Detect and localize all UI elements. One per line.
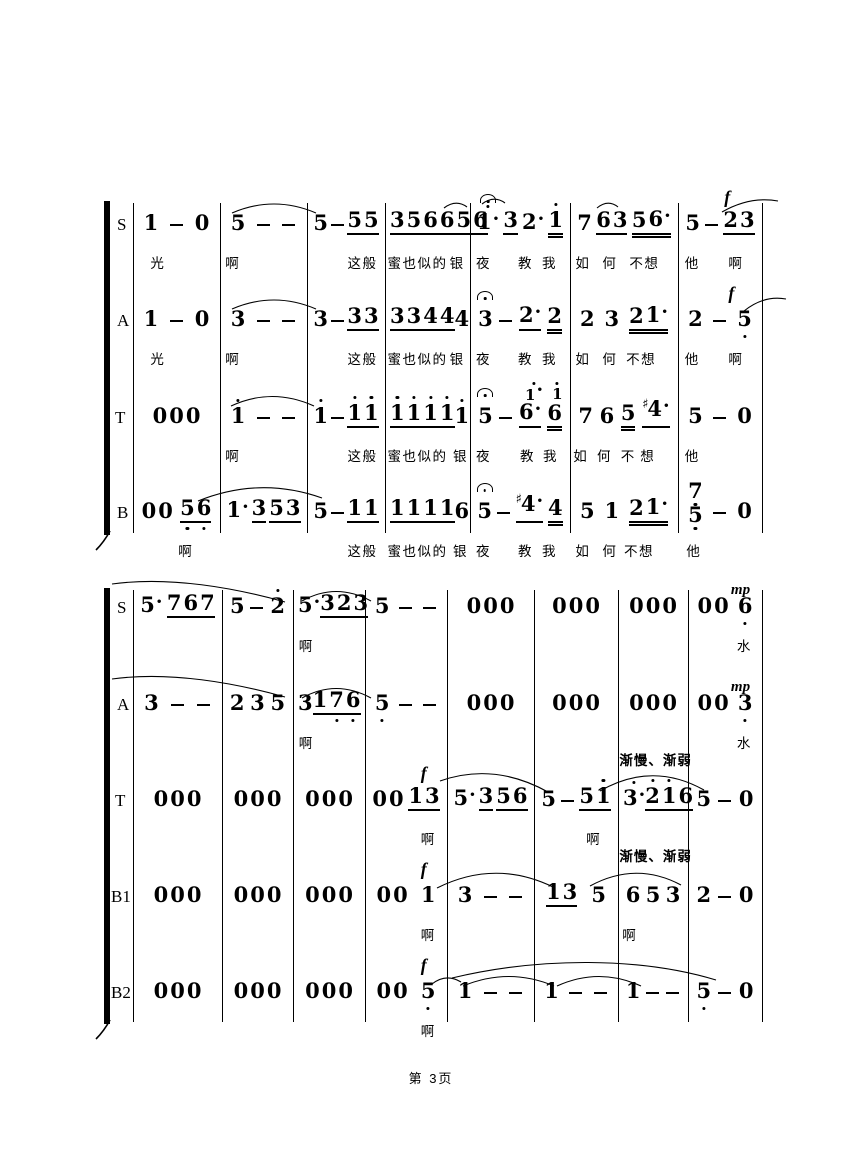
note: 0 [234,787,249,811]
note-group [499,320,513,331]
note-digit: 2 [270,593,285,618]
note-digit: 0 [267,786,282,811]
note: 5 [646,883,661,907]
note-group: 5 [375,691,390,715]
note-digit: 5 [632,207,647,232]
note-group: 000 [305,979,353,1003]
measure: 000 [222,973,293,1045]
note-row: 000 [133,877,222,907]
note-row: 2321· [570,301,678,331]
measure: 005啊f [365,973,447,1045]
lyric: 啊 [421,828,436,848]
note: 1 [347,496,362,520]
note: 0 [483,691,498,715]
octave-dot-below [743,335,746,338]
dash-mark [331,417,345,428]
note-digit: 6 [440,207,455,232]
note-digit: 7 [577,210,592,235]
note-digit: 1 [525,386,535,404]
sharp-sign: ♯ [642,397,648,412]
dash-mark [666,992,680,1003]
lyric: 蜜也似的 [388,348,448,368]
dash-mark [170,224,184,235]
note-digit: 1 [364,400,379,425]
note-row: 000 [534,685,618,715]
note-group: 51 [579,784,610,811]
measure: 000 [293,781,365,853]
note: 0 [195,307,210,331]
lyric: 啊 [586,828,601,848]
note-digit: 5 [298,592,313,617]
measure: 50他 [678,398,762,470]
note: 0 [305,979,320,1003]
note-group [257,320,271,331]
note-group: 000 [467,594,515,618]
note-digit: 5 [477,498,492,523]
note: 4 [548,496,563,520]
dash-line [399,704,412,706]
dash-mark [484,992,498,1003]
note: 1· [646,303,668,328]
note-row: 33444 [385,301,470,331]
note: 6 [596,208,611,232]
dash-line [282,224,295,226]
note-row: 135 [534,877,618,907]
measure: 5121·如何不想 [570,493,678,565]
note-group: 56· [632,207,671,235]
note-row: 000 [293,877,365,907]
note-digit: 0 [142,498,157,523]
note: 7 [688,482,703,499]
note-digit: 1 [605,498,620,523]
note-digit: 2 [723,207,738,232]
note: 0 [585,594,600,618]
note-group: 5 [231,211,246,235]
note-group: 21· [629,303,668,331]
note-digit: 3 [666,882,681,907]
note-group: 6 [600,404,615,428]
dash-line [594,992,607,994]
measure: 50 [688,781,762,853]
note-row: 000 [618,588,688,618]
note-row: 50 [688,781,762,811]
note-digit: 1 [347,495,362,520]
note: 0 [377,883,392,907]
note-digit: 3 [298,690,313,715]
dash-mark [718,800,732,811]
note-group [282,320,296,331]
note-group: 23 [723,208,754,235]
note-group: 1 [421,883,436,907]
note: 3 [563,880,578,904]
octave-dot-above [353,396,356,399]
note-row: 511 [307,493,385,523]
note-digit: 5 [230,593,245,618]
note-digit: 5 [541,786,556,811]
note-digit: 0 [158,498,173,523]
measure: 3 [133,685,222,757]
dash-line [718,992,731,994]
measure: 10光 [133,301,220,373]
note-digit: 5 [621,400,636,425]
lyric: 啊 [225,348,240,368]
note-group: 000 [305,883,353,907]
note-digit: 5 [646,882,661,907]
note-digit: 5 [696,978,711,1003]
dash-mark [561,800,575,811]
measure: 0013啊f [365,781,447,853]
dynamic-mark: f [724,187,730,208]
note-digit: 1 [477,209,492,234]
note: 3 [605,307,620,331]
lyric: 啊 [421,1020,436,1040]
note: 1 [313,404,328,428]
note-digit: 1 [226,497,241,522]
note: 3· [623,786,645,811]
measure: 56·6夜教我1·1 [470,398,570,470]
note-row: 000 [447,685,534,715]
note: 4 [455,307,470,331]
measure: 1 [447,973,534,1045]
note-digit: 1 [421,882,436,907]
note: 3 [390,304,405,328]
dash-line [331,320,344,322]
dash-line [646,992,659,994]
lyric: 水 [737,635,752,655]
note: 0 [250,883,265,907]
note: 0 [195,211,210,235]
note-group: 5 [271,691,286,715]
octave-dot-above [487,205,490,208]
note: 3 [313,307,328,331]
note-row: 3 [133,685,222,715]
dash-mark [399,704,413,715]
voice-label-S: S [117,215,126,235]
octave-dot-above [446,396,449,399]
measure: 000 [133,973,222,1045]
dash-mark [484,896,498,907]
lyric: 他 [685,445,700,465]
note-group: 216 [645,784,693,811]
note-digit: 1 [440,400,455,425]
octave-dot-below [744,622,747,625]
note-group: 56 [496,784,527,811]
note-digit: 0 [662,690,677,715]
dash-mark [250,607,264,618]
note: 3 [740,208,755,232]
dash-line [331,512,344,514]
measure: 000 [447,588,534,660]
note-row: 3176 [293,685,365,715]
measure: 32·2夜教我 [470,301,570,373]
note-digit: 3 [252,495,267,520]
measure: 52 [222,588,293,660]
measure: 5啊 [220,205,307,277]
note-digit: 3 [613,207,628,232]
note: 1 [552,387,562,403]
note-digit: 0 [714,593,729,618]
note: 0 [154,979,169,1003]
note-digit: 5 [347,207,362,232]
note-digit: 1 [626,978,641,1003]
dash-line [170,224,183,226]
note-group: 5 [375,594,390,618]
note: 5 [580,499,595,523]
note: 0 [158,499,173,523]
dash-line [282,320,295,322]
note: 5 [696,979,711,1003]
note: 3 [250,691,265,715]
dash-mark [282,417,296,428]
dash-mark [569,992,583,1003]
note-group: 5 [313,211,328,235]
augmentation-dot: · [661,493,668,515]
dash-line [499,320,512,322]
note-group: 5 [696,979,711,1003]
note-group [171,704,185,715]
note-row: 3 [220,301,307,331]
measure: 5 [365,588,447,660]
lyric: 啊 [421,924,436,944]
note: 0 [393,979,408,1003]
note: 3 [503,208,518,232]
note-digit: 5 [496,783,511,808]
note: 0 [322,787,337,811]
note-digit: 0 [737,403,752,428]
note: 0 [153,404,168,428]
sheet-music-page: S10光5啊555这般356656蜜也似的银1·32·1夜教我76356·如何不… [0,0,862,1153]
note-group: 6· [519,400,541,428]
dash-line [257,320,270,322]
note-group: 6 [626,883,641,907]
note-digit: 3 [425,783,440,808]
lyric: 我 [543,445,558,465]
note-group [423,607,437,618]
lyric: 教 [518,540,533,560]
lyric: 何 [602,348,617,368]
note: 0 [154,883,169,907]
note-digit: 0 [646,690,661,715]
note-digit: 0 [739,978,754,1003]
dash-line [423,607,436,609]
lyric: 银 [453,445,468,465]
tempo-annotation: 渐慢、渐弱 [619,845,692,865]
lyric: 这般 [348,252,378,272]
measure: 11116蜜也似的银 [385,493,470,565]
note: 5 [375,594,390,618]
note: 0 [739,979,754,1003]
note: 3 [320,591,335,615]
dash-line [509,896,522,898]
note-group: 00 [377,883,408,907]
note-digit: 0 [305,882,320,907]
note: 1 [455,404,470,428]
note: 5 [421,979,436,1003]
note: 1 [458,979,473,1003]
note: 3 [231,307,246,331]
note-row: 003 [688,685,762,715]
note-row: 765♯4· [570,398,678,428]
lyric: 蜜也似的 [388,445,448,465]
note-digit: 0 [170,786,185,811]
note-digit: 0 [267,978,282,1003]
lyric: 何 [602,540,617,560]
note: 0 [234,979,249,1003]
measure: 000 [534,588,618,660]
measure: 3啊 [220,301,307,373]
note-digit: 0 [377,978,392,1003]
note: 5 [591,883,606,907]
note: 0 [739,787,754,811]
note-digit: 1 [552,385,562,403]
note-digit: 3 [623,785,638,810]
note-digit: 3 [605,306,620,331]
note-group [257,417,271,428]
note-digit: 0 [500,593,515,618]
note-group: 000 [153,404,201,428]
measure: 750他 [678,493,762,565]
note-group: 7 [577,211,592,235]
dash-line [171,704,184,706]
note: 1 [626,979,641,1003]
note-group: 2 [270,594,285,618]
note: 0 [305,883,320,907]
note: 6 [600,404,615,428]
note: 7 [200,591,215,615]
note: 1 [231,404,246,428]
note: 0 [500,594,515,618]
note: 1· [226,498,248,523]
lyric: 想 [640,445,655,465]
note-group [705,224,719,235]
note-digit: 0 [662,593,677,618]
note-group: 3 [503,208,518,235]
note: 1· [646,495,668,520]
dash-line [718,896,731,898]
note-digit: 5 [313,498,328,523]
note-digit: 0 [338,978,353,1003]
lyric: 不想 [626,348,656,368]
dash-line [257,224,270,226]
note: 2 [547,304,562,328]
note-digit: 2 [522,209,537,234]
dash-mark [713,417,727,428]
note-group [399,607,413,618]
note: 0 [698,594,713,618]
note: 0 [698,691,713,715]
lyric: 他 [686,540,701,560]
note: 1 [440,496,455,520]
note-digit: 3 [390,207,405,232]
dash-mark [509,992,523,1003]
note-digit: 0 [170,978,185,1003]
note-group: 5· [453,786,475,811]
measure: 33444蜜也似的银 [385,301,470,373]
measure: 5·323啊 [293,588,365,660]
note: 5 [579,784,594,808]
note-digit: 3 [563,879,578,904]
note-group [713,417,727,428]
note-group: 1 [231,404,246,428]
note-group: 767 [167,591,215,618]
note-row: 000 [534,588,618,618]
note: 0 [250,979,265,1003]
note-digit: 0 [187,786,202,811]
note-group [499,417,513,428]
note: 6 [184,591,199,615]
note-group: 00 [377,979,408,1003]
note-digit: 0 [698,593,713,618]
note-digit: 0 [714,690,729,715]
note-row: 5·356 [447,781,534,811]
note-group: 2· [522,210,544,235]
augmentation-dot: · [242,496,249,518]
chord-stack: 75 [688,482,703,523]
note-group: 2 [688,307,703,331]
note: 1 [662,784,677,808]
note: 2 [230,691,245,715]
dash-mark [171,704,185,715]
measure: 1·353 [220,493,307,565]
dash-line [331,224,344,226]
note-digit: 6 [600,403,615,428]
lyric: 光 [150,348,165,368]
note-group: 63 [596,208,627,235]
note-row: 005 [365,973,447,1003]
dash-line [331,417,344,419]
note: 0 [483,594,498,618]
note-group: 5 [421,979,436,1003]
lyric: 如 [573,445,588,465]
note-digit: 1 [455,403,470,428]
note: 0 [737,404,752,428]
lyric: 啊 [225,445,240,465]
note: 0 [169,404,184,428]
note-row: 750 [678,493,762,523]
note: 5 [407,208,422,232]
note: 0 [305,787,320,811]
note-group [718,800,732,811]
measure: 000 [534,685,618,757]
note-group: 2 [696,883,711,907]
note-group: 3 [250,691,265,715]
note-group: 000 [552,691,600,715]
note: 0 [322,979,337,1003]
dash-line [170,320,183,322]
note: 5 [688,506,703,523]
voice-label-B2: B2 [111,983,131,1003]
lyric: 啊 [728,348,743,368]
note-group [257,224,271,235]
note-group: 0 [737,499,752,523]
augmentation-dot: · [536,379,543,401]
note-digit: 0 [170,882,185,907]
note-digit: 0 [500,690,515,715]
note-digit: 4 [423,303,438,328]
note-row: 76356· [570,205,678,235]
measure: 000 [222,877,293,949]
note: 1 [408,784,423,808]
note-digit: 0 [377,882,392,907]
note-digit: 2 [547,303,562,328]
note-digit: 0 [153,403,168,428]
note-digit: 5 [375,593,390,618]
note-digit: 4 [455,306,470,331]
note-group: 11 [347,496,378,523]
measure: 555这般 [307,205,385,277]
note-digit: 1 [423,400,438,425]
octave-dot-below [427,1007,430,1010]
